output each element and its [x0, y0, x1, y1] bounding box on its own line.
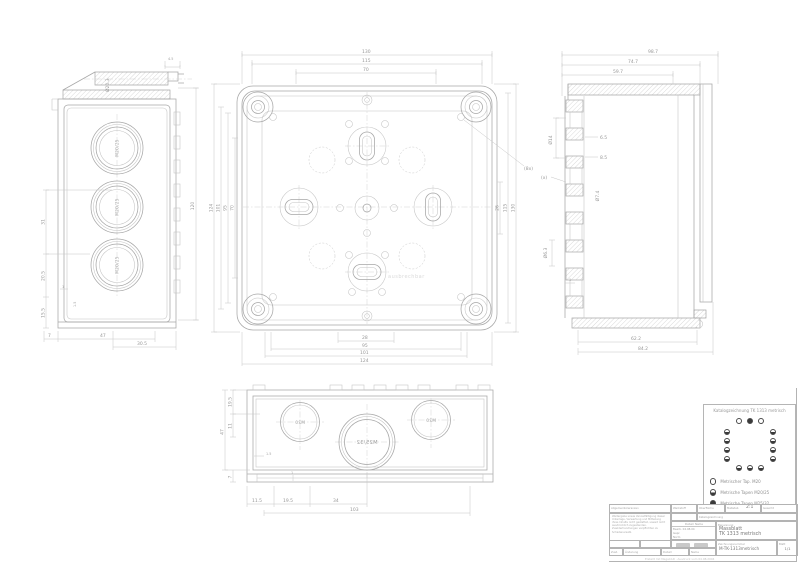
- legend-item-label: Metrische Tapen M20/25: [720, 490, 769, 495]
- dim-label: 74.7: [628, 59, 638, 65]
- name-label: Name: [690, 549, 715, 554]
- dim-label: 1: [569, 278, 571, 282]
- dim-label: Ø7.4: [594, 191, 601, 202]
- sheet-number: 1/1: [778, 546, 797, 551]
- surface-label: Oberfläche: [698, 505, 724, 510]
- half-circle-icon: [710, 489, 716, 495]
- scale-label: Maßstab: [726, 505, 739, 510]
- dim-label: 6.5: [600, 135, 607, 141]
- legend-dot-open: [758, 418, 764, 424]
- bearb-date: 04.08.04: [683, 527, 695, 531]
- knockout-label-mirrored: M20: [426, 418, 436, 424]
- watermark-text: ausbrechbar: [388, 274, 425, 280]
- norm-label: Norm: [673, 535, 680, 539]
- dim-label: 11: [228, 423, 234, 429]
- aenderung-label: Änderung: [624, 549, 660, 554]
- dim-label: 130: [511, 204, 517, 213]
- dim-label: 1.5: [73, 302, 77, 307]
- zust-label: Zust.: [610, 549, 622, 554]
- sheet-frame-bottom: [609, 561, 797, 562]
- drawing-number: M-TK-1313metrisch: [717, 546, 776, 551]
- legend-dot-half: [770, 438, 776, 444]
- dim-label: 84.2: [638, 346, 648, 352]
- dim-label: 31: [41, 219, 47, 225]
- legend-dot-half: [758, 465, 764, 471]
- bottom-view: M20 M20 M25/32 19.5 11 47 7 1.5 1 11.5 1…: [220, 385, 494, 516]
- front-view: ausbrechbar 130 115 70 28 95 101 124 124…: [209, 49, 534, 366]
- dim-label: Ø20.3: [104, 78, 111, 92]
- dim-label: 19.5: [228, 397, 234, 407]
- dim-label: Ø14: [547, 135, 554, 144]
- legend-dot-half: [747, 465, 753, 471]
- legend-dot-half: [770, 429, 776, 435]
- drawing-sheet: M20/25 M20/25 M20/25 Ø20.3 4.5 120 31 20…: [0, 0, 800, 565]
- legend-dot-half: [736, 465, 742, 471]
- note-label: (8x): [524, 166, 533, 172]
- knockout-label-mirrored: M20: [295, 420, 305, 426]
- dim-label: 11.5: [252, 498, 262, 504]
- oval-knockouts: [280, 127, 452, 291]
- drawing-canvas: M20/25 M20/25 M20/25 Ø20.3 4.5 120 31 20…: [0, 0, 800, 565]
- dim-label: 120: [190, 202, 196, 211]
- doc-type-label: Katalogzeichnung: [698, 514, 797, 519]
- dim-label: 7: [228, 475, 234, 478]
- dim-label: 115: [362, 58, 371, 64]
- dim-label: 101: [216, 204, 222, 213]
- title-block: Allgemeintoleranzen Werkstoff Oberfläche…: [609, 504, 798, 556]
- legend-dot-half: [724, 438, 730, 444]
- dim-label: 28: [362, 335, 368, 341]
- legend-dot-half: [770, 456, 776, 462]
- sheet-frame-right: [796, 388, 797, 562]
- dim-label: 59.7: [613, 69, 623, 75]
- dim-label: 47: [100, 333, 106, 339]
- dim-label: 95: [362, 343, 368, 349]
- dim-label: 4.5: [168, 57, 173, 61]
- dim-label: 98.7: [648, 49, 658, 55]
- legend-dot-half: [724, 447, 730, 453]
- dim-label: 70: [230, 205, 236, 211]
- dim-label: 7: [48, 333, 51, 339]
- legend-dot-half: [724, 429, 730, 435]
- datum-col-label: Datum: [685, 522, 694, 526]
- dim-label: 124: [360, 358, 369, 364]
- dim-label: 101: [360, 350, 369, 356]
- weight-label: Gewicht: [762, 505, 797, 510]
- name-col-label: Name: [695, 522, 703, 526]
- dim-label: 130: [362, 49, 371, 55]
- knockout-legend: Katalogzeichnung TK 1313 metrisch Metris…: [703, 404, 796, 506]
- dim-label: 19.5: [283, 498, 293, 504]
- dim-label: 62.2: [631, 336, 641, 342]
- dim-label: 95: [223, 205, 229, 211]
- dim-label: 47: [220, 429, 226, 435]
- dim-label: 30.5: [137, 341, 147, 347]
- datum-label: Datum: [662, 549, 688, 554]
- knockout-wall-profile: [566, 100, 583, 308]
- tolerance-label: Allgemeintoleranzen: [610, 505, 670, 510]
- dim-label: 124: [209, 204, 215, 213]
- legend-item-label: Metrischer Tap. M20: [720, 479, 760, 484]
- dim-label: 103: [350, 507, 359, 513]
- dim-label: 15.5: [41, 308, 47, 318]
- dim-label: 1: [62, 285, 64, 289]
- legend-dot-open: [736, 418, 742, 424]
- side-tabs: [174, 112, 180, 293]
- section-view: 98.7 74.7 59.7 Ø14 6.5 8.5 (x) Ø7.4 Ø6.3…: [541, 49, 718, 355]
- knockout-pattern-diagram: [721, 418, 779, 472]
- legend-dot-half: [770, 447, 776, 453]
- left-side-view: M20/25 M20/25 M20/25 Ø20.3 4.5 120 31 20…: [41, 57, 200, 350]
- dim-label: 26: [495, 205, 501, 211]
- knockout-label: M20/25: [115, 198, 121, 216]
- dim-label: 70: [363, 67, 369, 73]
- legend-title: Katalogzeichnung TK 1313 metrisch: [704, 408, 795, 413]
- dim-label: 1: [291, 471, 293, 475]
- knockout-label: M20/25: [115, 256, 121, 274]
- knockout-label: M20/25: [115, 139, 121, 157]
- dim-label: 1.5: [266, 452, 271, 456]
- material-label: Werkstoff: [672, 505, 696, 510]
- dim-label: 115: [503, 204, 509, 213]
- knockout-m20-25-column: M20/25 M20/25 M20/25: [91, 122, 143, 291]
- legend-dot-full: [747, 418, 753, 424]
- protection-note: Weitergabe sowie Vervielfältigung dieser…: [610, 514, 670, 535]
- dim-label: Ø6.3: [542, 248, 549, 259]
- company-logo: [676, 543, 690, 548]
- top-tabs: [253, 385, 490, 390]
- dim-label: 8.5: [600, 155, 607, 161]
- company-logo: [694, 543, 708, 548]
- note-label: (x): [541, 175, 547, 181]
- open-circle-icon: [710, 478, 716, 484]
- part-title-line2: TK 1313 metrisch: [717, 532, 797, 537]
- legend-item: Metrischer Tap. M20: [710, 476, 795, 487]
- dim-label: 20.5: [41, 271, 47, 281]
- bottom-knockouts: M20 M20 M25/32: [281, 401, 451, 471]
- legend-dot-half: [724, 456, 730, 462]
- legend-item: Metrische Tapen M20/25: [710, 487, 795, 498]
- dim-label: 34: [333, 498, 339, 504]
- knockout-label-mirrored: M25/32: [356, 440, 377, 446]
